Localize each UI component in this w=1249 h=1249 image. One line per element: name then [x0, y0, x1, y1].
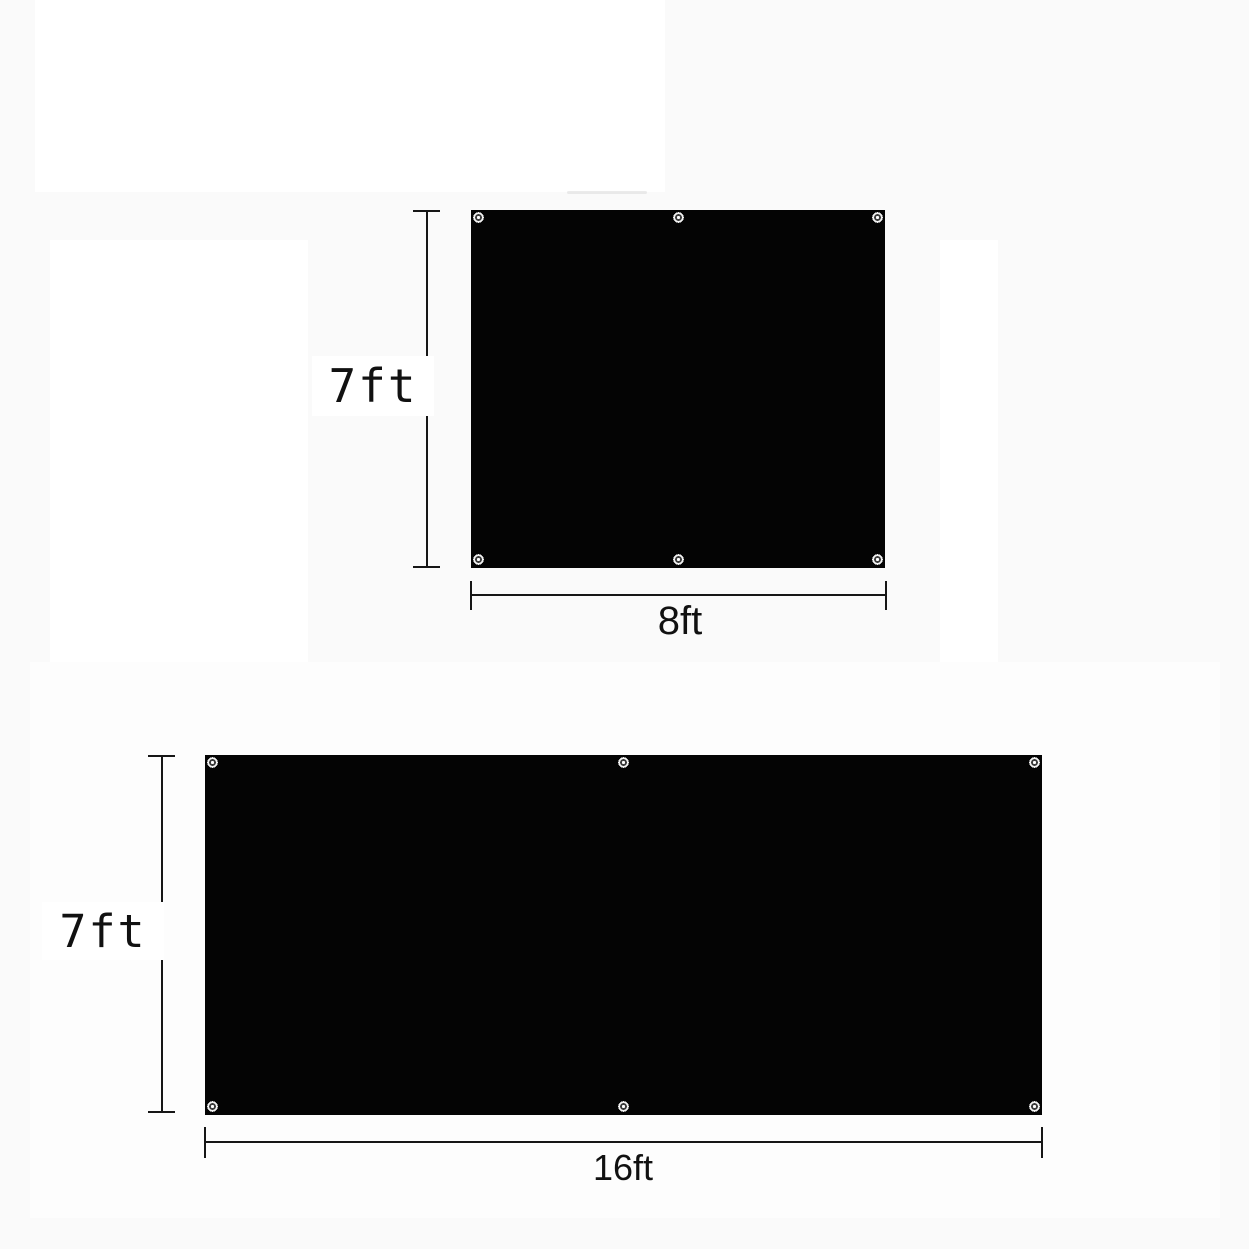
grommet-icon	[618, 757, 629, 768]
panel-8ft-by-7ft	[471, 210, 885, 568]
dimension-line-cap	[204, 1127, 206, 1158]
dimension-line-cap	[885, 581, 887, 610]
grommet-icon	[473, 554, 484, 565]
width-label-bottom-panel: 16ft	[543, 1146, 703, 1190]
grommet-icon	[872, 554, 883, 565]
background-patch-right	[940, 240, 998, 670]
image-artifact-smudge	[567, 191, 647, 194]
width-dimension-line	[205, 1141, 1043, 1143]
dimension-line-cap	[1041, 1127, 1043, 1158]
dimension-line-cap	[413, 566, 440, 568]
height-label-bottom-panel: 7ft	[42, 902, 164, 960]
width-dimension-line	[471, 594, 887, 596]
grommet-icon	[872, 212, 883, 223]
product-dimension-image: 7ft 8ft 7ft 16ft	[0, 0, 1249, 1249]
grommet-icon	[618, 1101, 629, 1112]
grommet-icon	[473, 212, 484, 223]
background-patch-top-left	[35, 0, 665, 192]
grommet-icon	[673, 554, 684, 565]
dimension-line-cap	[148, 755, 175, 757]
height-label-top-panel: 7ft	[312, 356, 434, 416]
grommet-icon	[207, 1101, 218, 1112]
background-patch-left	[50, 240, 308, 670]
dimension-line-cap	[148, 1111, 175, 1113]
grommet-icon	[1029, 757, 1040, 768]
panel-16ft-by-7ft	[205, 755, 1042, 1115]
grommet-icon	[1029, 1101, 1040, 1112]
dimension-line-cap	[470, 581, 472, 610]
width-label-top-panel: 8ft	[600, 598, 760, 644]
grommet-icon	[207, 757, 218, 768]
dimension-line-cap	[413, 210, 440, 212]
grommet-icon	[673, 212, 684, 223]
